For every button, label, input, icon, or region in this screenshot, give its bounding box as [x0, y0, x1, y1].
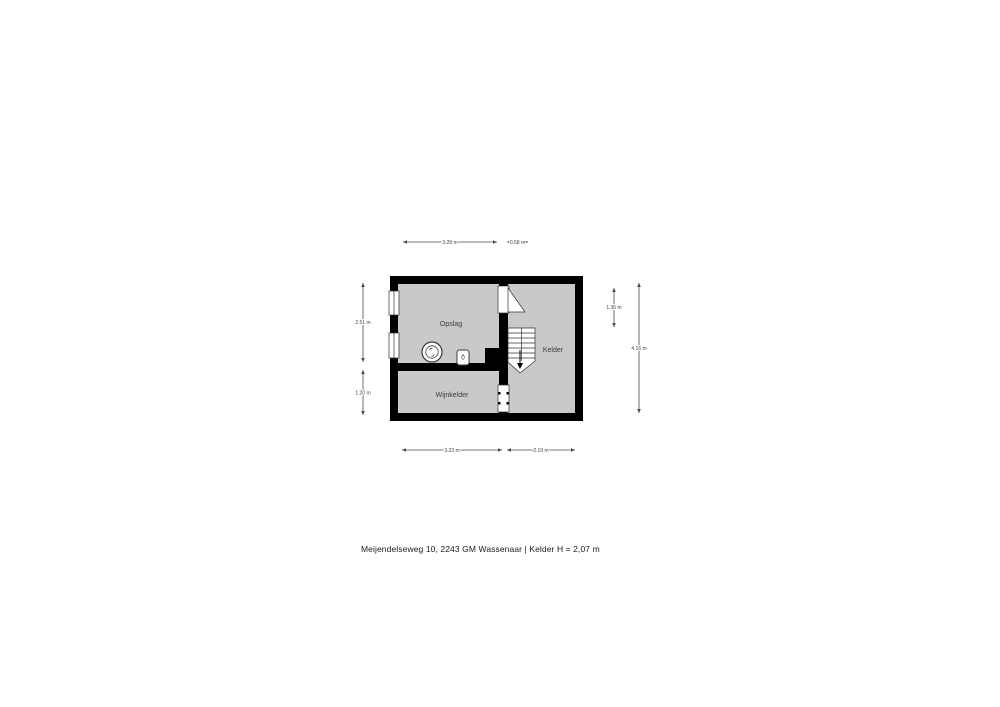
window-left-lower-icon: [389, 333, 399, 358]
boiler-icon: [457, 350, 469, 365]
wall-chimney-block: [485, 348, 499, 363]
page: Opslag Kelder Wijnkelder 3.28 m 0.58 m 3…: [0, 0, 1000, 707]
dimension-label: 0.58 m: [510, 240, 525, 246]
dimension-label: 3.28 m: [442, 240, 457, 246]
dimension-bottom-right: 2.19 m: [507, 448, 575, 454]
door-wijnkelder-kelder-icon: [498, 385, 509, 412]
dimension-label: 1.20 m: [355, 391, 370, 397]
dimension-label: 1.36 m: [606, 305, 621, 311]
dimension-label: 2.51 m: [355, 320, 370, 326]
floor-plan: Opslag Kelder Wijnkelder 3.28 m 0.58 m 3…: [340, 225, 660, 465]
wall-bottom: [390, 413, 583, 421]
room-label-opslag: Opslag: [440, 321, 462, 328]
dimension-top-right: 0.58 m: [507, 240, 528, 246]
wall-right: [575, 276, 583, 421]
window-left-upper-icon: [389, 291, 399, 315]
dimension-right-inner: 1.36 m: [606, 288, 621, 327]
dimension-right-outer: 4.16 m: [631, 283, 646, 413]
dimension-label: 4.16 m: [631, 346, 646, 352]
wall-horizontal-divider: [398, 363, 508, 371]
dimension-label: 3.23 m: [444, 448, 459, 454]
dimension-top-left: 3.28 m: [403, 240, 497, 246]
dimension-bottom-left: 3.23 m: [402, 448, 502, 454]
washing-machine-icon: [422, 342, 442, 362]
room-label-wijnkelder: Wijnkelder: [436, 392, 469, 399]
dimension-left-upper: 2.51 m: [355, 283, 370, 362]
room-label-kelder: Kelder: [543, 347, 564, 354]
dimension-label: 2.19 m: [533, 448, 548, 454]
dimension-left-lower: 1.20 m: [355, 370, 370, 415]
address-caption: Meijendelseweg 10, 2243 GM Wassenaar | K…: [361, 544, 600, 554]
wall-top: [390, 276, 583, 284]
